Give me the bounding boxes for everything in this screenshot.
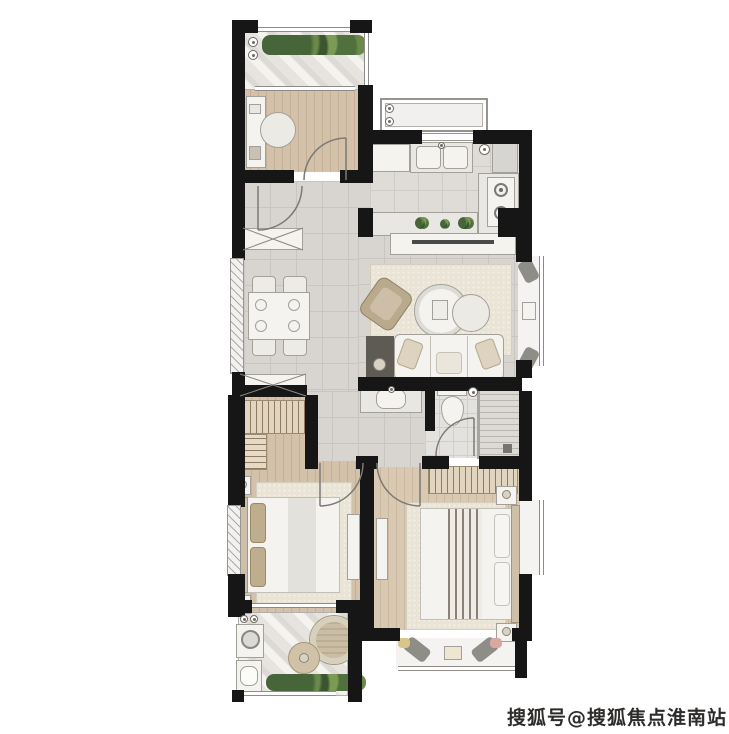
floorplan-canvas: 搜狐号@搜狐焦点淮南站 (0, 0, 729, 734)
desk-items (249, 104, 261, 114)
living-bay-glazing (539, 256, 544, 366)
faucet-icon (388, 386, 395, 393)
wall (232, 170, 294, 183)
wall (425, 385, 435, 431)
master-bed-runner (448, 509, 482, 619)
master-side-glazing (539, 500, 544, 575)
wall (519, 391, 532, 501)
wall (358, 208, 373, 237)
dining-chair (252, 339, 276, 356)
wall (305, 395, 318, 461)
watermark-text: 搜狐号@搜狐焦点淮南站 (507, 703, 727, 730)
counter-herbs (458, 217, 474, 229)
bedroom2-balcony-slider (250, 603, 338, 608)
balcony-bottom-window (240, 691, 336, 696)
wall (498, 208, 532, 237)
table-lamp (373, 358, 386, 371)
wall (232, 385, 307, 397)
sofa-blanket (436, 352, 462, 374)
wall (232, 20, 245, 185)
fridge (371, 144, 410, 172)
wall (516, 360, 532, 378)
wall (479, 456, 522, 469)
pouf-detail (299, 653, 309, 663)
flue-icon (468, 387, 478, 397)
wall (519, 574, 532, 630)
kitchen-sink (416, 146, 441, 169)
dining-window (230, 258, 244, 374)
bedroom2-blanket-fold (288, 498, 316, 592)
faucet-icon (438, 142, 445, 149)
plate (288, 320, 300, 332)
tv (412, 240, 494, 244)
coffee-table-tray (432, 300, 448, 320)
wall (228, 395, 245, 507)
utility-basin (240, 666, 258, 686)
wall (305, 456, 318, 469)
dining-chair (283, 339, 307, 356)
ac-platform (380, 98, 488, 132)
wall (350, 20, 372, 33)
wall (348, 612, 362, 702)
study-chair (260, 112, 296, 148)
master-bay-glazing (398, 666, 518, 671)
shower-floor (480, 391, 519, 461)
sofa-seam (430, 336, 431, 378)
coffee-table-small (452, 294, 490, 332)
study-balcony-slider (255, 86, 355, 91)
wall (516, 237, 532, 262)
master-pillow (494, 562, 510, 606)
plate (255, 299, 267, 311)
burner-icon (494, 183, 508, 197)
wall (232, 600, 252, 613)
balcony-top-window-right (364, 30, 369, 90)
kitchen-sink (443, 146, 468, 169)
counter-herbs (440, 219, 450, 229)
bedroom2-pillow (250, 547, 266, 587)
dining-chair (252, 276, 276, 293)
plate (288, 299, 300, 311)
wall (232, 183, 245, 260)
kitchen-appliance (492, 143, 518, 173)
shoe-cabinet (243, 228, 303, 250)
sofa-seam (467, 336, 468, 378)
bedroom2-window (227, 505, 241, 576)
wall (515, 638, 527, 678)
master-pillow (494, 514, 510, 558)
bedroom2-pillow (250, 503, 266, 543)
wall (340, 170, 373, 183)
kitchen-window (422, 133, 473, 141)
bay-tray (522, 302, 536, 320)
drain-icon (385, 117, 394, 126)
shower-drain-icon (503, 444, 512, 453)
desk-items (249, 146, 261, 160)
wall (358, 85, 373, 173)
master-bay-pillow (490, 638, 502, 648)
master-side-window-seat (520, 500, 539, 575)
wall (232, 690, 244, 702)
master-bay-tray (444, 646, 462, 660)
floor-drain-icon (248, 37, 258, 47)
bedroom2-wardrobe (237, 400, 307, 434)
wall (360, 628, 400, 641)
wall (358, 377, 522, 391)
washer-drum-icon (241, 630, 260, 649)
bedroom2-dresser (347, 514, 360, 580)
master-dresser (376, 518, 388, 580)
dining-chair (283, 276, 307, 293)
wall (422, 456, 449, 469)
water-tap-icon (248, 50, 258, 60)
water-tap-icon (250, 615, 258, 623)
floor-drain-icon (240, 615, 248, 623)
drain-icon (385, 104, 394, 113)
wall (372, 130, 422, 144)
wall (236, 20, 258, 33)
flue-icon (479, 144, 490, 155)
side-table (366, 336, 394, 378)
nightstand-lamp (502, 627, 511, 636)
counter-herbs (415, 217, 429, 229)
shower-glass (477, 391, 480, 459)
nightstand-lamp (502, 490, 511, 499)
plate (255, 320, 267, 332)
wall (360, 461, 374, 629)
balcony-plants (262, 35, 366, 55)
